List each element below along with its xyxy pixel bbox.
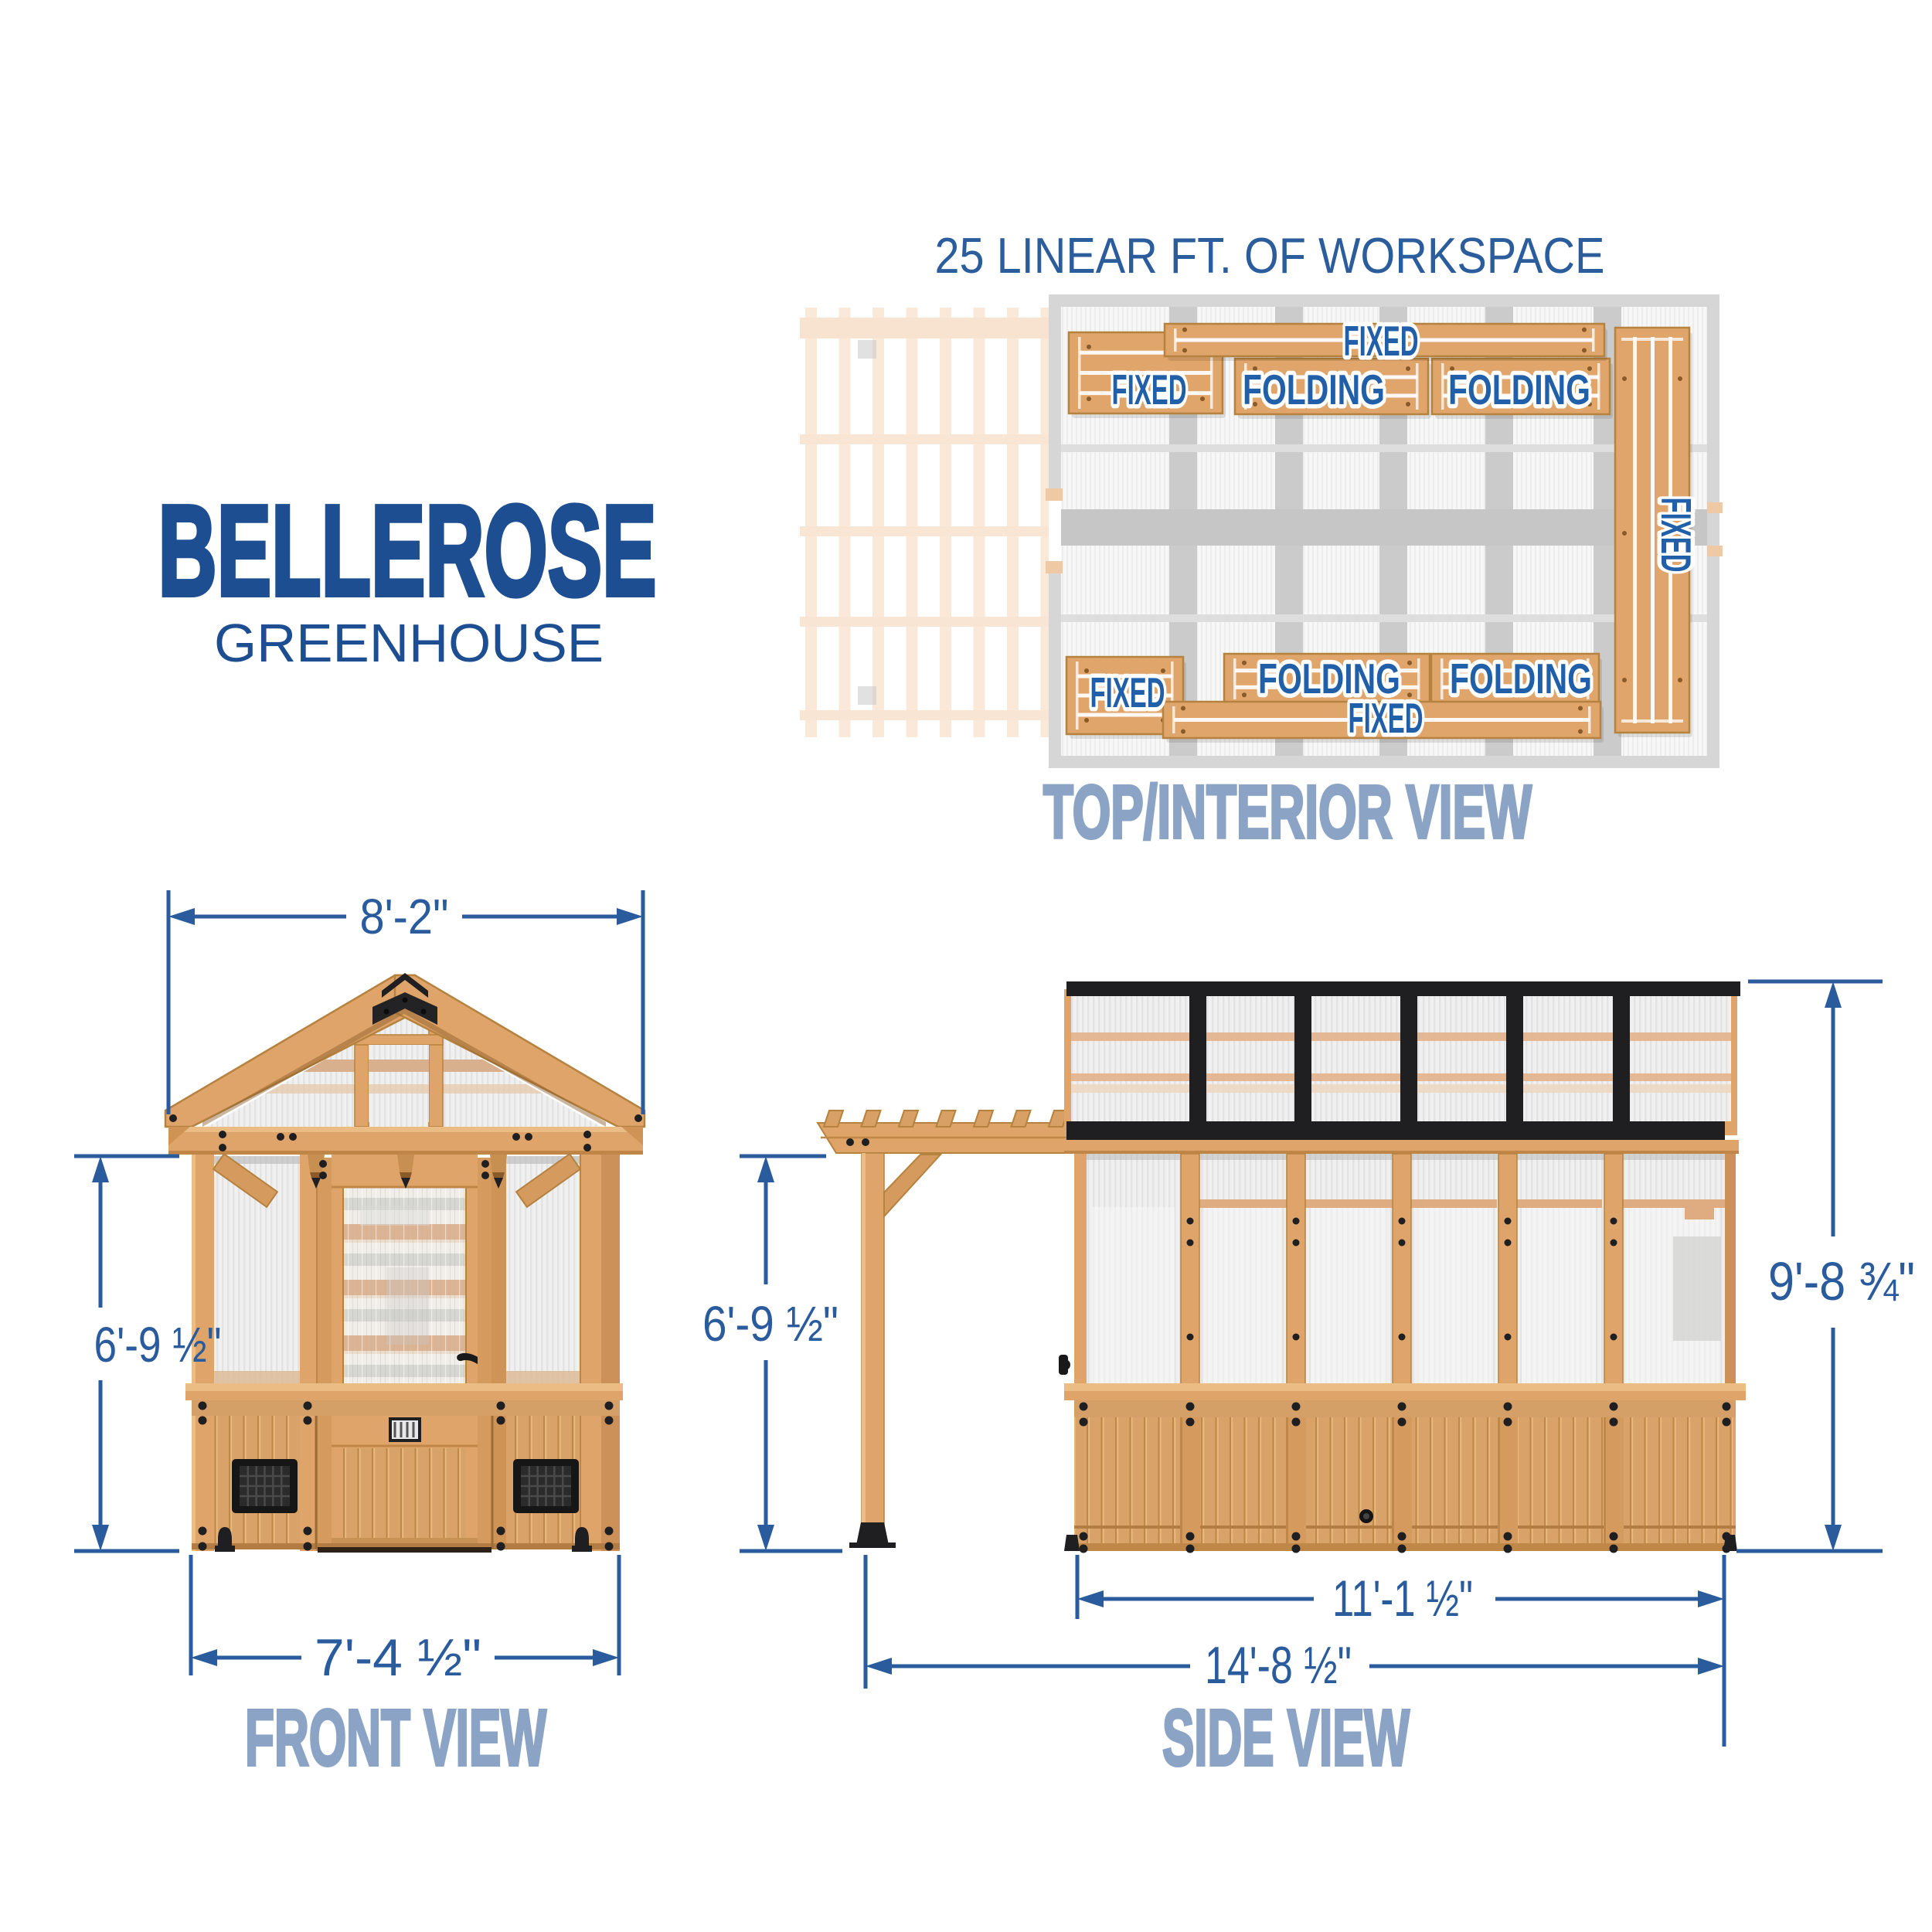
svg-text:7'-4 ½": 7'-4 ½" — [315, 1628, 481, 1687]
svg-text:BELLEROSE: BELLEROSE — [158, 479, 657, 623]
svg-text:FOLDING: FOLDING — [1450, 655, 1592, 702]
svg-text:25 LINEAR FT. OF WORKSPACE: 25 LINEAR FT. OF WORKSPACE — [935, 227, 1605, 284]
svg-text:FIXED: FIXED — [1112, 366, 1187, 413]
svg-text:FIXED: FIXED — [1349, 694, 1423, 742]
svg-text:FOLDING: FOLDING — [1448, 366, 1590, 413]
svg-text:8'-2": 8'-2" — [360, 889, 449, 944]
svg-text:9'-8 ¾": 9'-8 ¾" — [1768, 1251, 1915, 1311]
svg-text:TOP/INTERIOR VIEW: TOP/INTERIOR VIEW — [1043, 770, 1532, 854]
svg-text:14'-8 ½": 14'-8 ½" — [1205, 1636, 1352, 1695]
svg-text:FOLDING: FOLDING — [1243, 366, 1385, 413]
svg-text:FRONT VIEW: FRONT VIEW — [245, 1693, 546, 1782]
svg-text:FIXED: FIXED — [1090, 668, 1165, 716]
svg-text:6'-9 ½": 6'-9 ½" — [94, 1317, 222, 1372]
svg-text:GREENHOUSE: GREENHOUSE — [214, 613, 604, 673]
svg-text:6'-9 ½": 6'-9 ½" — [702, 1296, 838, 1352]
svg-text:FIXED: FIXED — [1344, 317, 1419, 365]
svg-text:SIDE VIEW: SIDE VIEW — [1162, 1693, 1410, 1782]
svg-text:11'-1 ½": 11'-1 ½" — [1332, 1570, 1473, 1627]
svg-text:FIXED: FIXED — [1652, 498, 1700, 573]
